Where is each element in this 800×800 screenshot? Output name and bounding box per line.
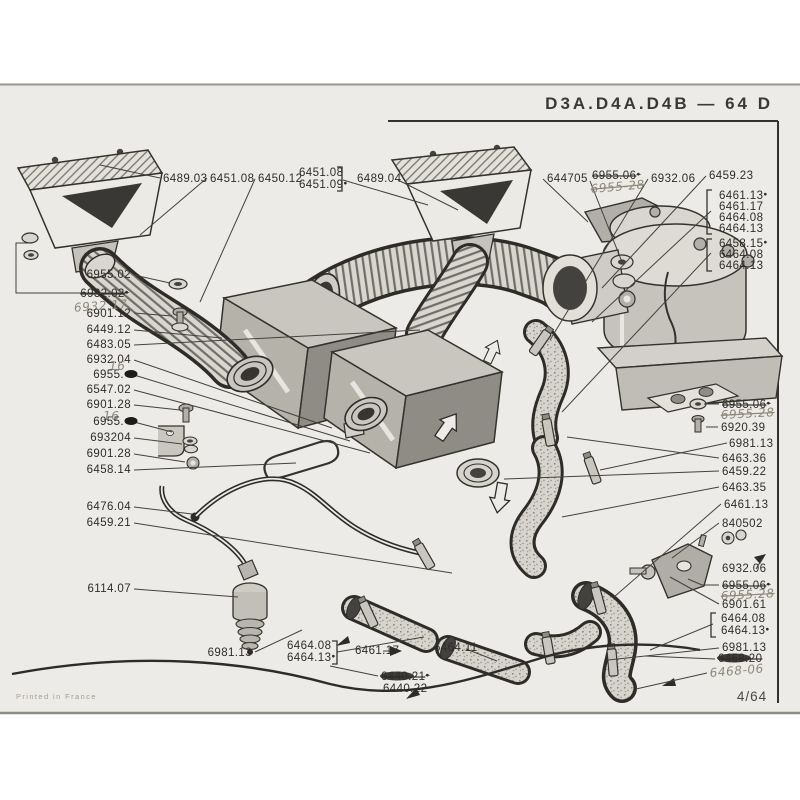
part-label: 644705 [547, 173, 588, 185]
part-label: 6451.08 [299, 167, 343, 179]
part-label: 6451.08 [210, 173, 254, 185]
part-label: 6464.13● [721, 625, 770, 637]
part-label: 6459.22 [722, 466, 766, 478]
part-label: 6901.28 [87, 448, 131, 460]
part-label: 6461.17 [355, 645, 399, 657]
part-label: 6901.12 [87, 308, 131, 320]
part-label: 6440.22 [383, 683, 427, 695]
part-label: 6955.28 [720, 405, 774, 422]
part-label: 6461.13 [724, 499, 768, 511]
part-label: 6464.11 [434, 642, 478, 654]
part-label: 840502 [722, 518, 763, 530]
part-label: 6955. [93, 369, 124, 381]
part-label: 6440.21● [381, 671, 430, 683]
part-label: 6901.61 [722, 599, 766, 611]
part-label: 6449.12 [87, 324, 131, 336]
part-label: 6464.13 [719, 260, 763, 272]
part-label: 6547.02 [87, 384, 131, 396]
catalog-page: 6489.036451.086450.126451.086451.09●6489… [0, 0, 800, 800]
part-label: 6489.04 [357, 173, 402, 185]
part-label: 6451.09● [299, 179, 348, 191]
part-label: 6981.13 [729, 438, 773, 450]
part-label: 6463.35 [722, 482, 766, 494]
part-label: 6932.06 [651, 173, 695, 185]
part-label: 6464.08 [721, 613, 765, 625]
part-label: 6464.08 [287, 640, 331, 652]
part-label: 6464.13 [719, 223, 763, 235]
page-number: 4/64 [737, 689, 767, 704]
part-label: 6955.02 [87, 269, 131, 281]
part-label: 693204 [90, 432, 131, 444]
page-title: D3A.D4A.D4B — 64 D [545, 94, 773, 113]
part-label: 6459.23 [709, 170, 753, 182]
part-label: 6981.13 [208, 647, 252, 659]
part-label: 6483.05 [87, 339, 131, 351]
parts-diagram: 6489.036451.086450.126451.086451.09●6489… [0, 0, 800, 800]
part-label: 6463.36 [722, 453, 766, 465]
part-label: 6114.07 [87, 583, 131, 595]
printed-note: Printed in France [16, 692, 97, 701]
part-label: 6955. [93, 416, 124, 428]
part-label: 6489.03 [163, 173, 207, 185]
part-label: 6458.14 [87, 464, 132, 476]
part-label: 6932.06 [722, 563, 766, 575]
part-label: 6450.12 [258, 173, 302, 185]
grommet-ring [457, 459, 499, 487]
part-label: 6476.04 [87, 501, 132, 513]
part-label: 6464.13● [287, 652, 336, 664]
part-label: 6459.21 [87, 517, 131, 529]
part-label: 6920.39 [721, 422, 765, 434]
